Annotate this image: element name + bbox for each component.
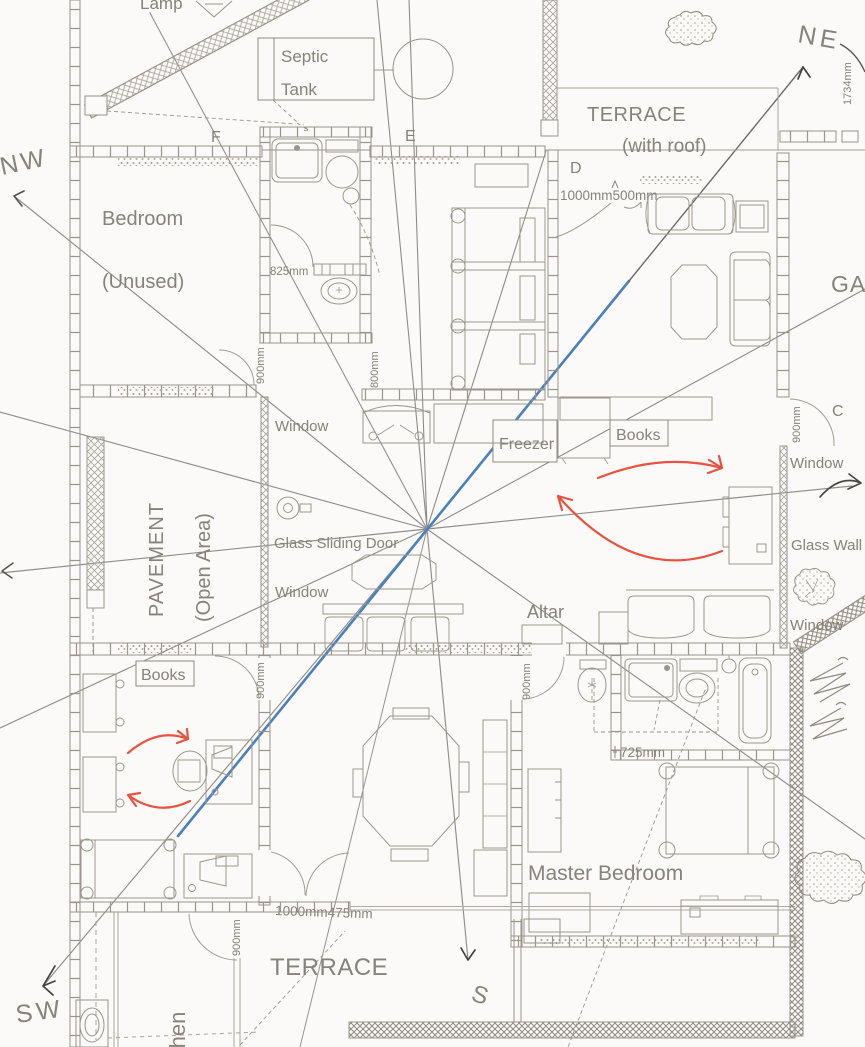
svg-text:Kitchen: Kitchen — [165, 1012, 190, 1047]
svg-text:Tank: Tank — [281, 80, 317, 99]
svg-text:TERRACE: TERRACE — [587, 104, 686, 126]
svg-text:1734mm: 1734mm — [842, 62, 854, 105]
svg-text:PAVEMENT: PAVEMENT — [146, 502, 168, 617]
svg-text:900mm: 900mm — [255, 347, 267, 384]
svg-text:Window: Window — [275, 584, 329, 601]
svg-text:(Open Area): (Open Area) — [193, 513, 215, 622]
svg-text:900mm: 900mm — [255, 662, 267, 699]
svg-text:Bedroom: Bedroom — [102, 208, 183, 230]
svg-text:TERRACE: TERRACE — [270, 954, 388, 981]
svg-text:F: F — [211, 129, 221, 146]
svg-text:725mm: 725mm — [620, 745, 665, 760]
svg-text:E: E — [405, 128, 416, 145]
svg-text:800mm: 800mm — [369, 351, 381, 388]
svg-text:C: C — [832, 403, 844, 420]
svg-text:Glass Wall: Glass Wall — [791, 537, 862, 554]
svg-text:GARDEN: GARDEN — [831, 271, 865, 297]
svg-text:Books: Books — [616, 427, 660, 444]
svg-text:1000mm500mm: 1000mm500mm — [560, 188, 658, 203]
svg-text:D: D — [570, 160, 582, 177]
svg-text:Window: Window — [275, 418, 329, 435]
svg-text:Window: Window — [790, 455, 844, 472]
svg-text:Freezer: Freezer — [499, 436, 555, 453]
svg-text:Altar: Altar — [527, 602, 564, 622]
svg-text:Window: Window — [790, 617, 844, 634]
svg-text:Lamp: Lamp — [140, 0, 183, 13]
svg-text:Master Bedroom: Master Bedroom — [528, 862, 683, 885]
svg-text:Books: Books — [141, 667, 185, 684]
svg-text:Glass Sliding Door: Glass Sliding Door — [274, 535, 398, 552]
svg-text:900mm: 900mm — [521, 663, 533, 700]
svg-text:900mm: 900mm — [791, 406, 803, 443]
svg-text:Septic: Septic — [281, 47, 329, 66]
svg-text:(Unused): (Unused) — [102, 271, 184, 293]
svg-text:900mm: 900mm — [231, 919, 243, 956]
svg-text:(with roof): (with roof) — [622, 136, 706, 157]
svg-text:825mm: 825mm — [270, 266, 308, 278]
